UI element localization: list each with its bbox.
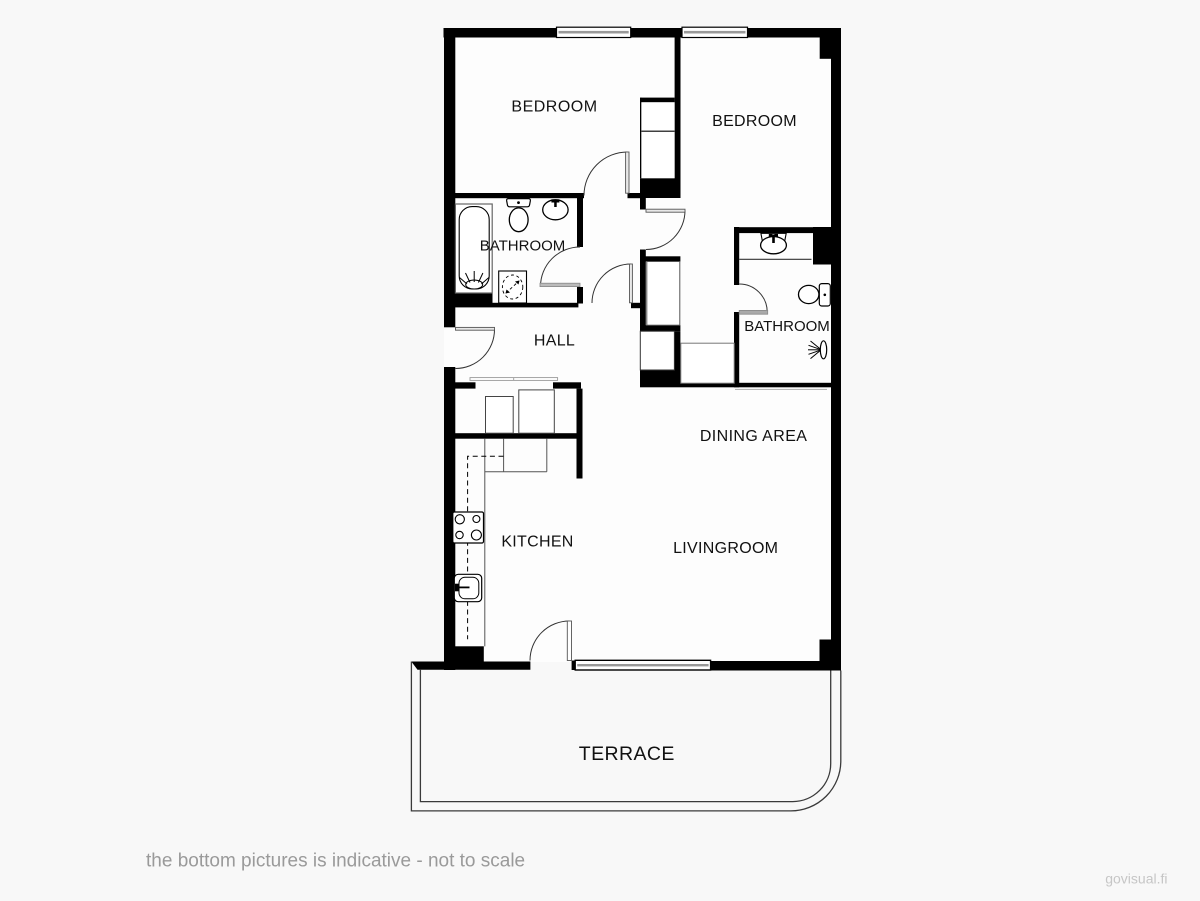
svg-text:KITCHEN: KITCHEN — [501, 534, 573, 551]
svg-text:govisual.fi: govisual.fi — [1105, 871, 1167, 887]
svg-text:BEDROOM: BEDROOM — [712, 113, 797, 130]
svg-text:TERRACE: TERRACE — [579, 743, 675, 765]
svg-text:BATHROOM: BATHROOM — [480, 238, 566, 255]
svg-text:the bottom pictures is indicat: the bottom pictures is indicative - not … — [146, 851, 525, 872]
svg-text:HALL: HALL — [534, 333, 575, 350]
svg-text:BEDROOM: BEDROOM — [511, 99, 597, 116]
svg-text:LIVINGROOM: LIVINGROOM — [673, 540, 778, 557]
svg-text:BATHROOM: BATHROOM — [744, 318, 830, 335]
svg-text:DINING AREA: DINING AREA — [700, 428, 808, 445]
